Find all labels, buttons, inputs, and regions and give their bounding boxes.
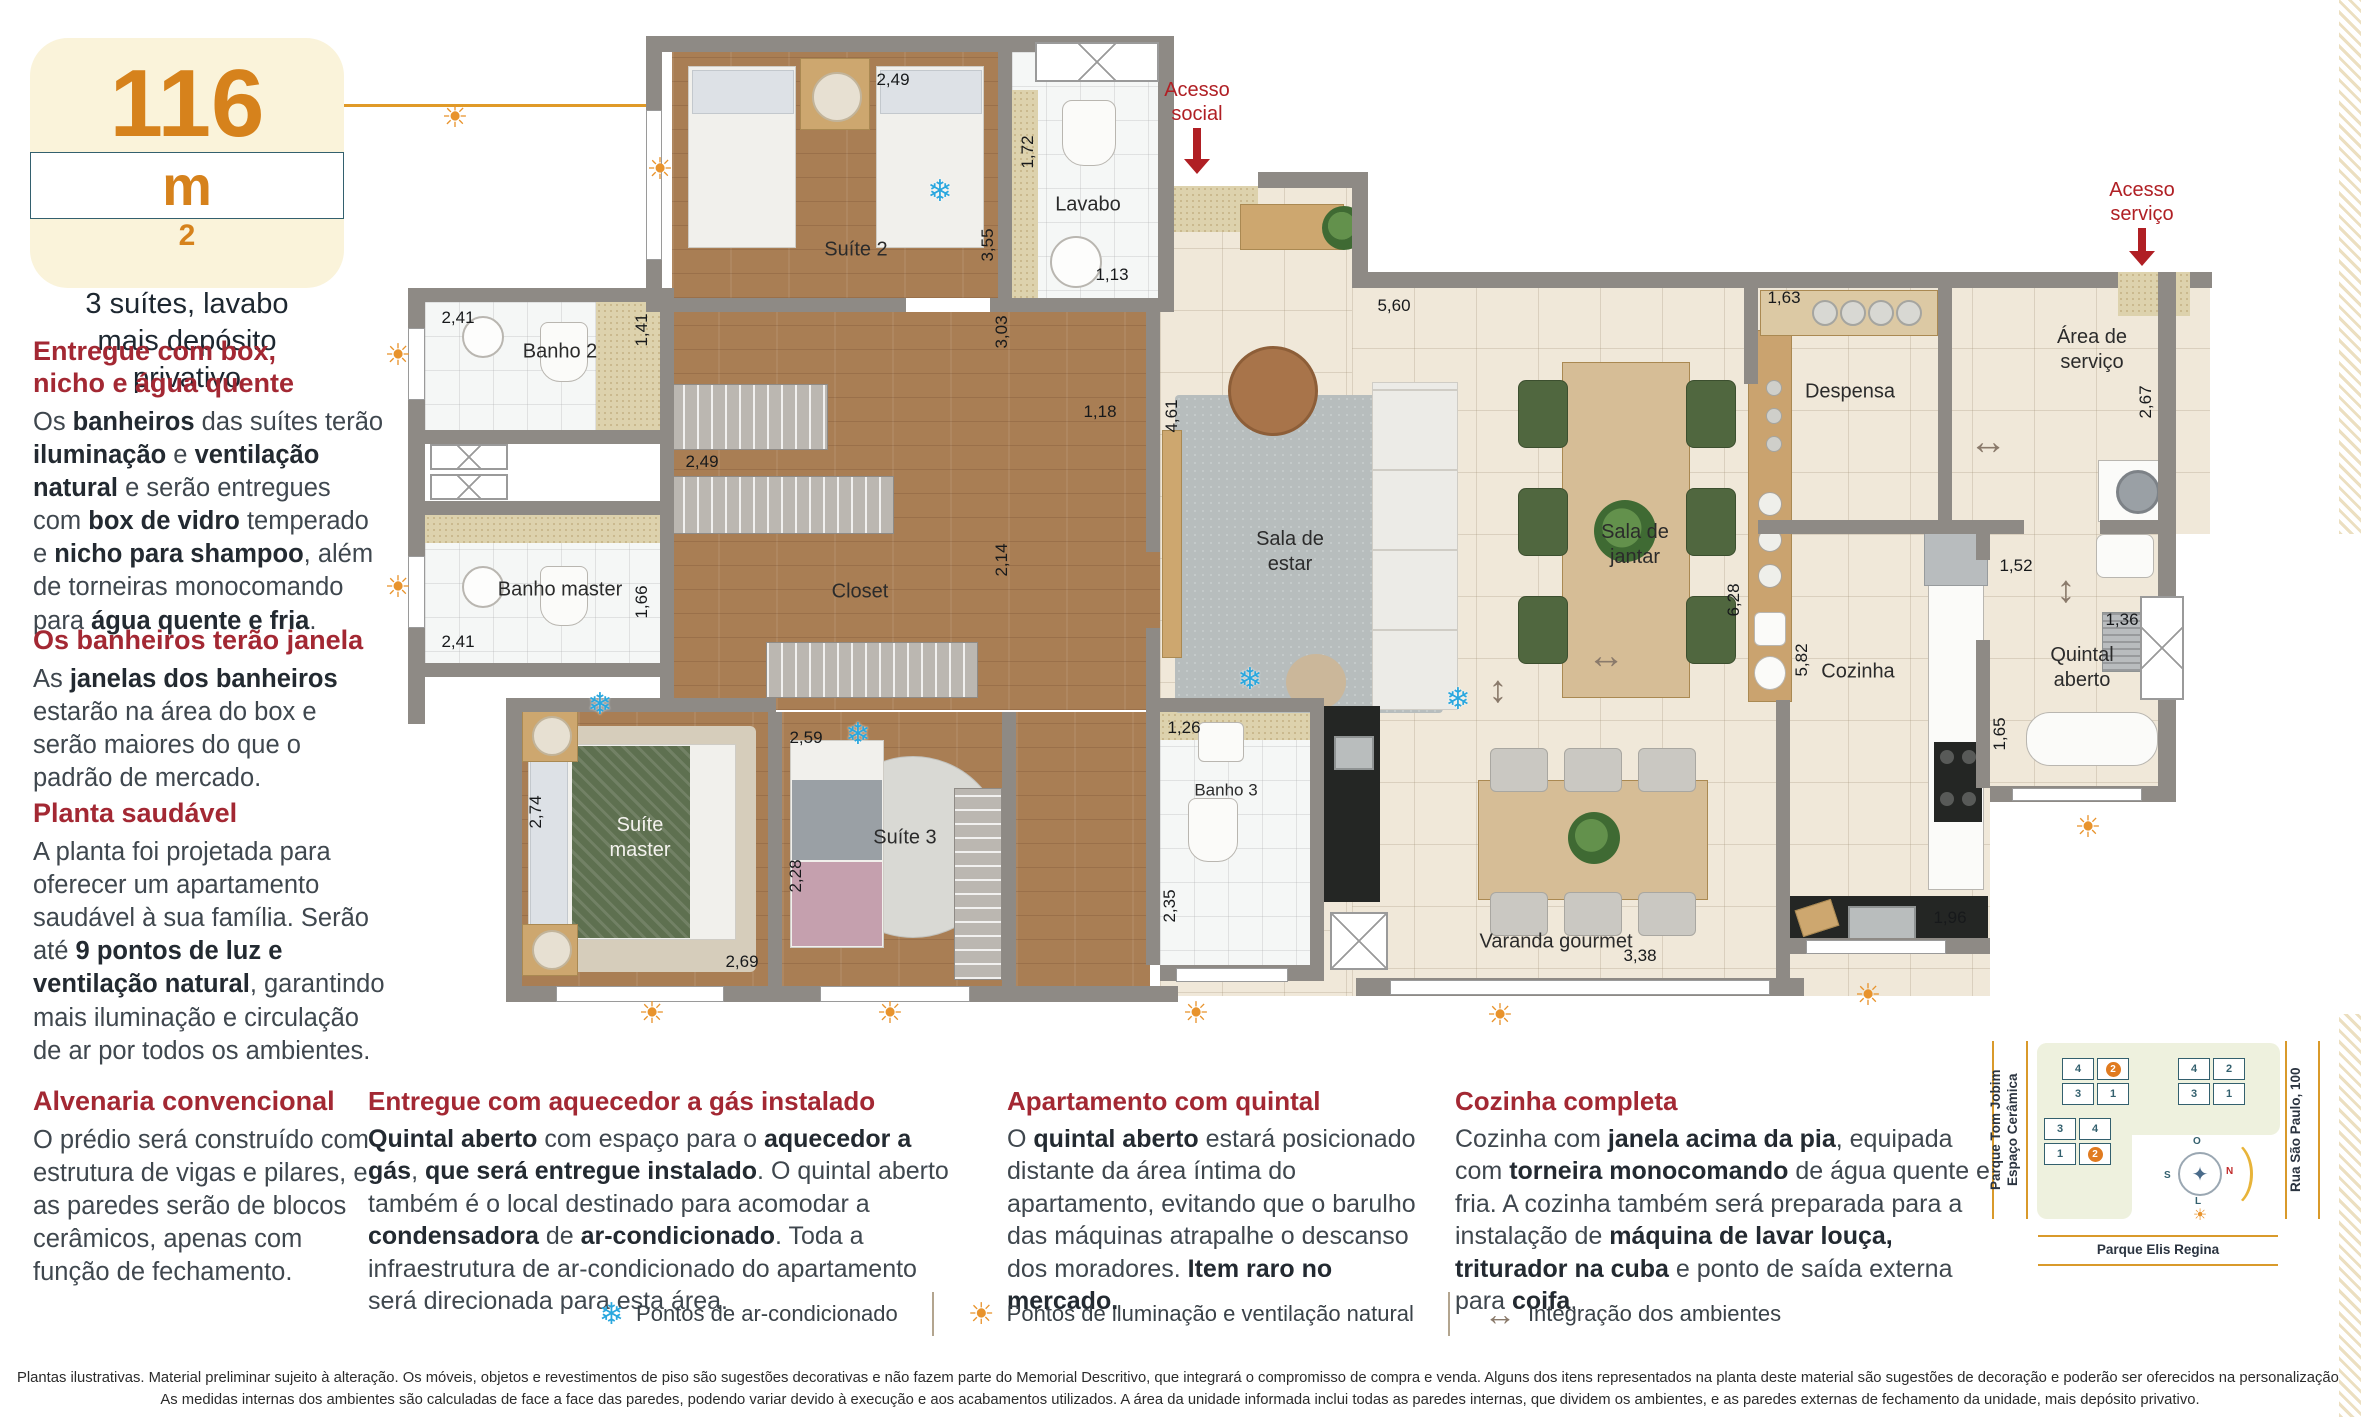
- building-unit: 4: [2079, 1118, 2111, 1140]
- bar-sink: [1334, 736, 1374, 770]
- dimension: 3,38: [1623, 946, 1656, 966]
- article-body: A planta foi projetada para oferecer um …: [33, 836, 385, 1068]
- building-cluster: 4 2 3 1: [2178, 1058, 2245, 1105]
- compass-letter-o: O: [2193, 1136, 2201, 1147]
- dimension: 3,55: [978, 228, 998, 261]
- article-planta-saudavel: Planta saudável A planta foi projetada p…: [33, 798, 385, 1068]
- wall: [1146, 712, 1160, 965]
- ac-point-icon: [587, 690, 612, 720]
- wall: [768, 712, 782, 988]
- pantry-item: [1766, 408, 1782, 424]
- article-quintal: Apartamento com quintal O quintal aberto…: [1007, 1086, 1437, 1318]
- floor-lavabo-strip: [1012, 90, 1038, 300]
- article-heading: Alvenaria convencional: [33, 1086, 385, 1118]
- pillow: [530, 748, 568, 938]
- light-point-icon: [1183, 999, 1210, 1029]
- wall: [1310, 712, 1324, 972]
- dimension: 2,69: [725, 952, 758, 972]
- burner: [1962, 792, 1976, 806]
- building-unit: 3: [2062, 1083, 2094, 1105]
- plate-stack: [1840, 300, 1866, 326]
- legend: Pontos de ar-condicionado Pontos de ilum…: [560, 1292, 1820, 1336]
- light-point-icon: [639, 999, 666, 1029]
- basin: [1754, 656, 1786, 690]
- wall: [1744, 288, 1758, 384]
- building-cluster: 4 2 3 1: [2062, 1058, 2129, 1105]
- integration-arrow-icon: [1489, 671, 1508, 709]
- building-unit-highlighted: 2: [2079, 1143, 2111, 1165]
- article-aquecedor: Entregue com aquecedor a gás instalado Q…: [368, 1086, 968, 1318]
- wall: [1944, 520, 2024, 534]
- building-unit: 1: [2097, 1083, 2129, 1105]
- light-point-icon: [385, 341, 412, 371]
- shaft: [1035, 42, 1159, 82]
- room-label-quintal: Quintal aberto: [2050, 643, 2113, 693]
- room-label-lavabo: Lavabo: [1055, 193, 1121, 218]
- oven: [1754, 612, 1786, 646]
- article-heading: Cozinha completa: [1455, 1086, 2000, 1117]
- plate-stack: [1868, 300, 1894, 326]
- shaft: [430, 474, 508, 500]
- window: [1806, 940, 1946, 954]
- wall: [506, 698, 776, 712]
- armchair: [1228, 346, 1318, 436]
- chair: [1490, 748, 1548, 792]
- wall: [1976, 640, 1990, 788]
- wall: [660, 288, 674, 712]
- sitemap-right-street: Rua São Paulo, 100: [2288, 1038, 2316, 1222]
- article-cozinha: Cozinha completa Cozinha com janela acim…: [1455, 1086, 2000, 1318]
- sliding-door: [1390, 980, 1770, 995]
- chair: [1686, 488, 1736, 556]
- kitchen-sink: [1848, 906, 1916, 940]
- plate-stack: [1812, 300, 1838, 326]
- compass-letter-s: S: [2164, 1170, 2171, 1181]
- wall: [1146, 698, 1324, 712]
- area-badge: 116m2 3 suítes, lavabo mais depósito pri…: [30, 38, 344, 288]
- wall: [2190, 272, 2212, 288]
- article-body: As janelas dos banheiros estarão na área…: [33, 663, 385, 796]
- ac-point-icon: [1237, 665, 1262, 695]
- dimension: 2,67: [2136, 385, 2156, 418]
- article-box-nicho: Entregue com box, nicho e água quente Os…: [33, 336, 385, 638]
- gas-water-heater: [2026, 712, 2158, 766]
- legend-label: Pontos de ar-condicionado: [636, 1301, 898, 1327]
- legend-item-integration: Integração dos ambientes: [1484, 1296, 1781, 1333]
- sun-icon: [968, 1297, 995, 1332]
- toilet: [1188, 798, 1238, 862]
- light-point-icon: [1487, 1001, 1514, 1031]
- pantry-item: [1766, 436, 1782, 452]
- room-label-suite2: Suíte 2: [824, 238, 887, 263]
- wall: [408, 501, 660, 515]
- lamp: [812, 72, 862, 122]
- dimension: 3,03: [992, 315, 1012, 348]
- article-heading: Apartamento com quintal: [1007, 1086, 1437, 1117]
- dimension: 1,65: [1990, 717, 2010, 750]
- shaft: [2140, 596, 2184, 700]
- closet-shelf: [766, 642, 978, 698]
- snowflake-icon: [599, 1297, 624, 1332]
- shaft: [430, 444, 508, 470]
- laundry-sink: [2096, 534, 2154, 578]
- wall: [1976, 534, 1990, 560]
- light-point-icon: [877, 999, 904, 1029]
- article-alvenaria: Alvenaria convencional O prédio será con…: [33, 1086, 385, 1290]
- light-point-icon: [2075, 813, 2102, 843]
- dimension: 2,59: [789, 728, 822, 748]
- floor-hall-lower: [1016, 712, 1150, 988]
- window: [2012, 788, 2142, 801]
- burner: [1940, 792, 1954, 806]
- chair: [1518, 596, 1568, 664]
- article-janela: Os banheiros terão janela As janelas dos…: [33, 625, 385, 795]
- ac-point-icon: [845, 720, 870, 750]
- access-social-arrow-icon: [1193, 128, 1201, 160]
- wall: [1160, 172, 1174, 188]
- building-unit: 2: [2213, 1058, 2245, 1080]
- window: [1176, 968, 1288, 982]
- blanket: [792, 780, 882, 860]
- building-cluster: 3 4 1 2: [2044, 1118, 2111, 1165]
- wall: [2100, 520, 2176, 534]
- dimension: 1,72: [1018, 135, 1038, 168]
- chair: [1518, 488, 1568, 556]
- room-label-sala-jantar: Sala de jantar: [1601, 520, 1669, 570]
- sink: [1198, 722, 1244, 762]
- exterior-mask: [1990, 802, 2361, 1002]
- article-heading: Os banheiros terão janela: [33, 625, 385, 657]
- legend-item-ac: Pontos de ar-condicionado: [599, 1297, 898, 1332]
- article-heading: Planta saudável: [33, 798, 385, 830]
- wall: [1758, 520, 1948, 534]
- washer-door: [2116, 470, 2160, 514]
- badge-connector-line: [344, 104, 650, 107]
- sitemap-rule: [2318, 1041, 2320, 1219]
- shower-area: [425, 515, 660, 543]
- sitemap-left-street: Parque Tom Jobim Espaço Cerâmica: [1988, 1038, 2026, 1222]
- light-point-icon: [1855, 981, 1882, 1011]
- light-point-icon: [647, 155, 674, 185]
- room-label-varanda: Varanda gourmet: [1479, 930, 1632, 955]
- chair: [1638, 892, 1696, 936]
- dimension: 2,14: [992, 543, 1012, 576]
- disclaimer-text: Plantas ilustrativas. Material prelimina…: [12, 1367, 2348, 1411]
- article-body: Cozinha com janela acima da pia, equipad…: [1455, 1123, 2000, 1318]
- dimension: 2,74: [526, 795, 546, 828]
- integration-arrow-icon: [1587, 637, 1625, 675]
- pillow: [692, 70, 794, 114]
- article-body: O prédio será construído com estrutura d…: [33, 1124, 385, 1290]
- dimension: 4,61: [1162, 399, 1182, 432]
- wall: [1352, 272, 2118, 288]
- building-unit: 3: [2178, 1083, 2210, 1105]
- wall: [2158, 272, 2176, 802]
- legend-divider: [932, 1292, 934, 1336]
- lamp: [532, 716, 572, 756]
- dimension: 2,49: [685, 452, 718, 472]
- wall: [1002, 712, 1016, 988]
- dimension: 1,52: [1999, 556, 2032, 576]
- dimension: 2,49: [876, 70, 909, 90]
- compass-sun-icon: ☀: [2193, 1208, 2207, 1224]
- article-body: Quintal aberto com espaço para o aqueced…: [368, 1123, 968, 1318]
- dimension: 5,82: [1792, 643, 1812, 676]
- integration-arrow-icon: [1969, 423, 2007, 461]
- ac-point-icon: [1445, 685, 1470, 715]
- dimension: 1,36: [2105, 610, 2138, 630]
- wall: [1352, 172, 1368, 288]
- shaft: [1330, 912, 1388, 970]
- wall: [998, 52, 1012, 300]
- room-label-cozinha: Cozinha: [1821, 660, 1894, 685]
- article-heading: Entregue com box, nicho e água quente: [33, 336, 385, 400]
- dimension: 2,28: [786, 859, 806, 892]
- room-label-area-servico: Área de serviço: [2057, 325, 2127, 375]
- access-servico-label: Acesso serviço: [2109, 178, 2175, 226]
- building-unit: 4: [2062, 1058, 2094, 1080]
- chair: [1638, 748, 1696, 792]
- compass-letter-l: L: [2195, 1196, 2201, 1207]
- legend-divider: [1448, 1292, 1450, 1336]
- building-unit-highlighted: 2: [2097, 1058, 2129, 1080]
- chair: [1564, 748, 1622, 792]
- plant: [1568, 812, 1620, 864]
- area-value: 116m2: [30, 56, 344, 278]
- building-unit: 4: [2178, 1058, 2210, 1080]
- pantry-item: [1766, 380, 1782, 396]
- wall: [990, 298, 1174, 312]
- chair: [1518, 380, 1568, 448]
- dimension: 1,18: [1083, 402, 1116, 422]
- sink: [1050, 236, 1102, 288]
- legend-item-light: Pontos de iluminação e ventilação natura…: [968, 1297, 1414, 1332]
- light-point-icon: [442, 103, 469, 133]
- room-label-banho3: Banho 3: [1194, 779, 1257, 800]
- room-label-sala-estar: Sala de estar: [1256, 527, 1324, 577]
- article-body: Os banheiros das suítes terão iluminação…: [33, 406, 385, 638]
- dimension: 1,96: [1933, 908, 1966, 928]
- toilet: [1062, 100, 1116, 166]
- double-arrow-icon: [1484, 1296, 1516, 1333]
- tv-sideboard: [1162, 430, 1182, 658]
- building-unit: 1: [2213, 1083, 2245, 1105]
- wall: [408, 288, 660, 302]
- room-label-banho-master: Banho master: [498, 578, 623, 603]
- closet-shelf: [668, 384, 828, 450]
- article-body: O quintal aberto estará posicionado dist…: [1007, 1123, 1437, 1318]
- dimension: 1,66: [632, 585, 652, 618]
- cooktop-item: [1758, 564, 1782, 588]
- compass-icon: ✦: [2178, 1152, 2222, 1196]
- cooktop-item: [1758, 492, 1782, 516]
- sitemap-rule: [2038, 1264, 2278, 1266]
- wall: [1938, 288, 1952, 534]
- compass-letter-n: N: [2226, 1166, 2233, 1177]
- room-label-suite-master: Suíte master: [609, 813, 670, 863]
- room-label-suite3: Suíte 3: [873, 826, 936, 851]
- burner: [1962, 750, 1976, 764]
- room-label-banho2: Banho 2: [523, 340, 598, 365]
- dimension: 5,60: [1377, 296, 1410, 316]
- building-unit: 3: [2044, 1118, 2076, 1140]
- wall: [408, 430, 660, 444]
- light-point-icon: [385, 573, 412, 603]
- legend-label: Integração dos ambientes: [1528, 1301, 1781, 1327]
- dimension: 2,41: [441, 632, 474, 652]
- ac-point-icon: [927, 177, 952, 207]
- sitemap-rule: [2285, 1041, 2287, 1219]
- chair: [1686, 380, 1736, 448]
- plate-stack: [1896, 300, 1922, 326]
- access-servico-arrow-icon: [2138, 228, 2146, 252]
- room-label-despensa: Despensa: [1805, 380, 1895, 405]
- dimension: 1,26: [1167, 718, 1200, 738]
- lamp: [532, 930, 572, 970]
- access-social-label: Acesso social: [1164, 78, 1230, 126]
- burner: [1940, 750, 1954, 764]
- wall: [1258, 172, 1366, 188]
- sitemap-rule: [2026, 1041, 2028, 1219]
- room-label-closet: Closet: [832, 580, 889, 605]
- dimension: 2,41: [441, 308, 474, 328]
- dimension: 1,63: [1767, 288, 1800, 308]
- dimension: 1,13: [1095, 265, 1128, 285]
- floor-service-entry-strip: [2118, 272, 2190, 316]
- sofa: [1372, 382, 1458, 710]
- sitemap-bottom-street: Parque Elis Regina: [2038, 1242, 2278, 1257]
- wall: [646, 298, 906, 312]
- article-heading: Entregue com aquecedor a gás instalado: [368, 1086, 968, 1117]
- wall: [1146, 312, 1160, 552]
- wardrobe: [954, 788, 1002, 980]
- wall: [408, 663, 660, 677]
- dimension: 2,35: [1160, 889, 1180, 922]
- building-unit: 1: [2044, 1143, 2076, 1165]
- wall: [506, 698, 522, 1002]
- integration-arrow-icon: [2057, 571, 2076, 609]
- closet-shelf: [668, 476, 894, 534]
- dimension: 1,41: [632, 313, 652, 346]
- legend-label: Pontos de iluminação e ventilação natura…: [1007, 1301, 1414, 1327]
- dimension: 6,28: [1724, 583, 1744, 616]
- wall: [1146, 628, 1160, 712]
- sitemap-rule: [2038, 1235, 2278, 1237]
